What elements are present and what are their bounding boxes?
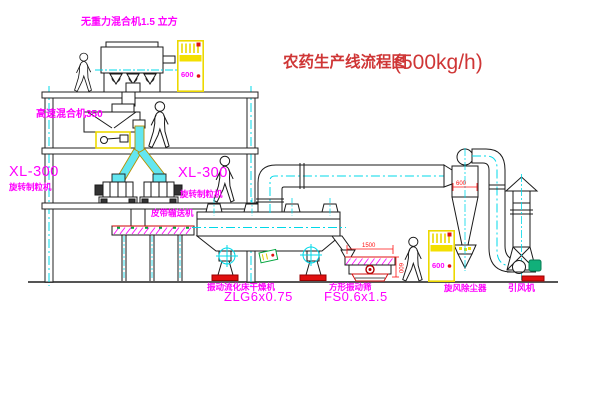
vibrating-sieve-machine xyxy=(341,245,399,281)
label-cyclone-name: 旋风除尘器 xyxy=(443,283,487,293)
cyclone-separator-machine xyxy=(452,148,478,271)
worker-figure-floor2 xyxy=(149,102,169,148)
fan-base xyxy=(522,276,544,281)
label-granulator-right-name: 旋转制粒机 xyxy=(179,189,223,199)
granulator-right-machine xyxy=(140,182,182,203)
granulator-discharge-duct xyxy=(131,209,145,226)
cabinet-top-marking: 600 xyxy=(181,70,194,79)
control-cabinet-top xyxy=(178,41,203,91)
dim-sieve-height: 600 xyxy=(397,263,403,274)
dim-cyclone-diameter: 600 xyxy=(456,181,467,187)
label-fan-name: 引风机 xyxy=(508,282,535,293)
label-granulator-right-model: XL-300 xyxy=(178,165,228,181)
cabinet-ground-marking: 600 xyxy=(432,261,445,270)
diagram-title-capacity: (500kg/h) xyxy=(394,51,483,74)
label-gravity-mixer: 无重力混合机1.5 立方 xyxy=(80,15,178,28)
worker-figure-roof xyxy=(75,53,92,91)
belt-conveyor-machine xyxy=(112,226,194,281)
label-high-speed-mixer: 高速混合机350 xyxy=(36,107,103,120)
process-flow-drawing: 无重力混合机1.5 立方 农药生产线流程图 (500kg/h) 高速混合机350… xyxy=(0,0,600,403)
worker-figure-ground xyxy=(403,237,422,281)
fan-motor xyxy=(529,260,541,271)
label-dryer-model: ZLG6x0.75 xyxy=(224,289,293,304)
control-cabinet-ground xyxy=(429,231,454,281)
dim-sieve-length: 1500 xyxy=(362,243,376,249)
label-belt-conveyor: 皮带输送机 xyxy=(150,208,194,218)
cad-flow-diagram-canvas: 无重力混合机1.5 立方 农药生产线流程图 (500kg/h) 高速混合机350… xyxy=(0,0,600,403)
label-granulator-left-model: XL-300 xyxy=(9,164,59,180)
diagram-title: 农药生产线流程图 xyxy=(282,52,407,71)
granulator-left-machine xyxy=(95,182,137,203)
label-granulator-left-name: 旋转制粒机 xyxy=(8,182,52,192)
label-sieve-model: FS0.6x1.5 xyxy=(324,289,388,304)
